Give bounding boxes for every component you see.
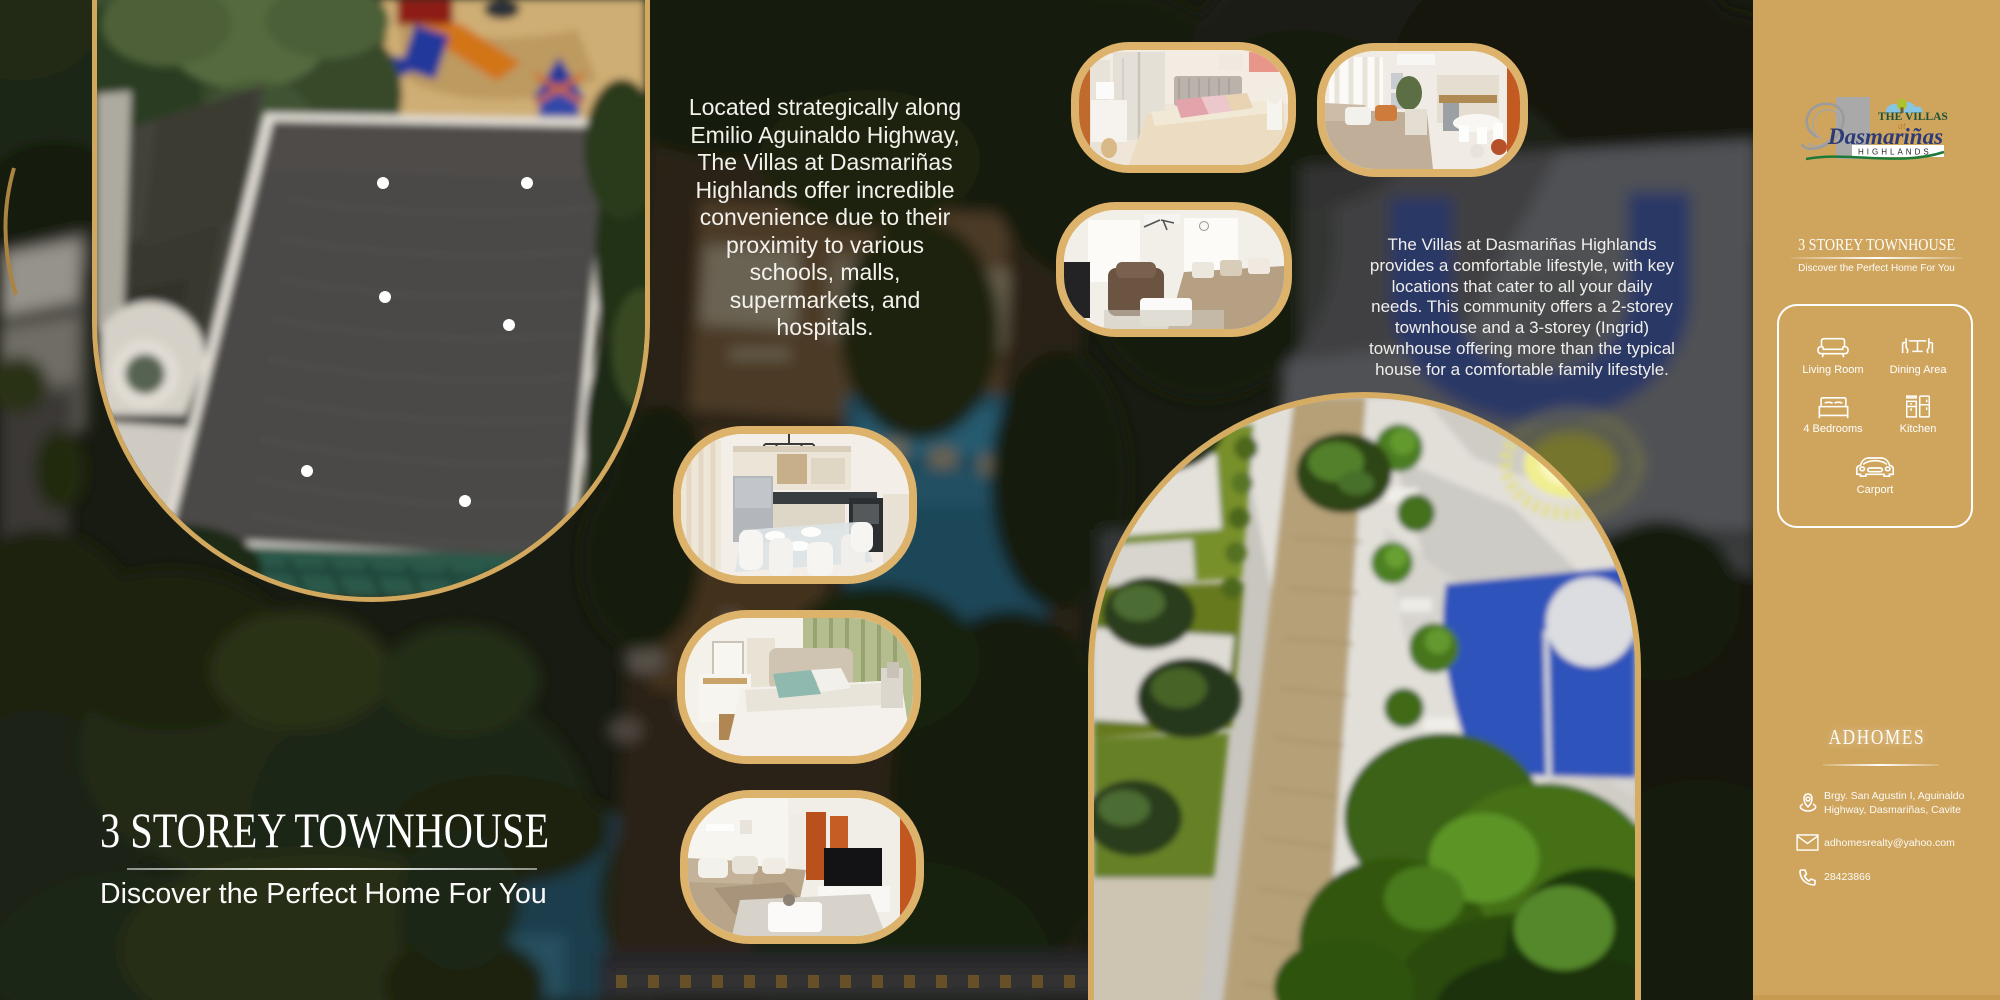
svg-text:THE VILLAS: THE VILLAS: [1878, 111, 1948, 123]
svg-text:HIGHLANDS: HIGHLANDS: [1858, 148, 1932, 157]
